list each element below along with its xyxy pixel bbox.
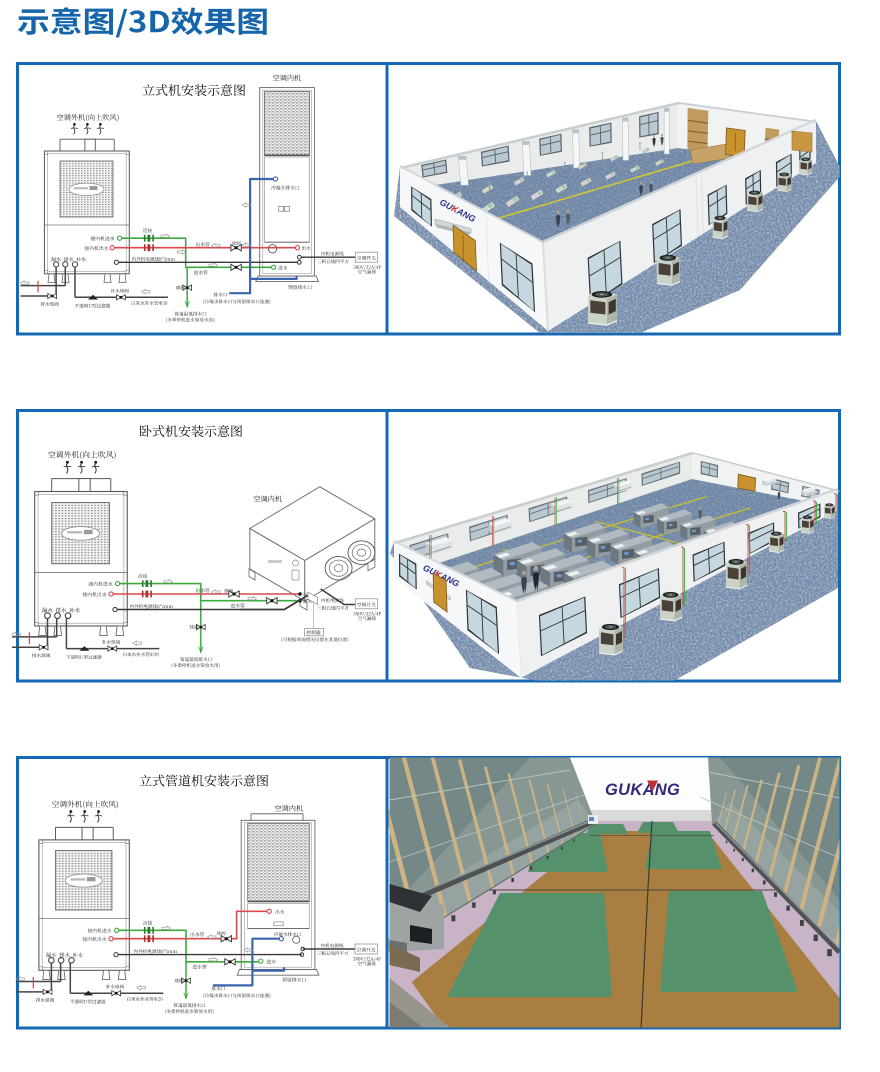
svg-text:GUKANG: GUKANG — [605, 781, 680, 799]
